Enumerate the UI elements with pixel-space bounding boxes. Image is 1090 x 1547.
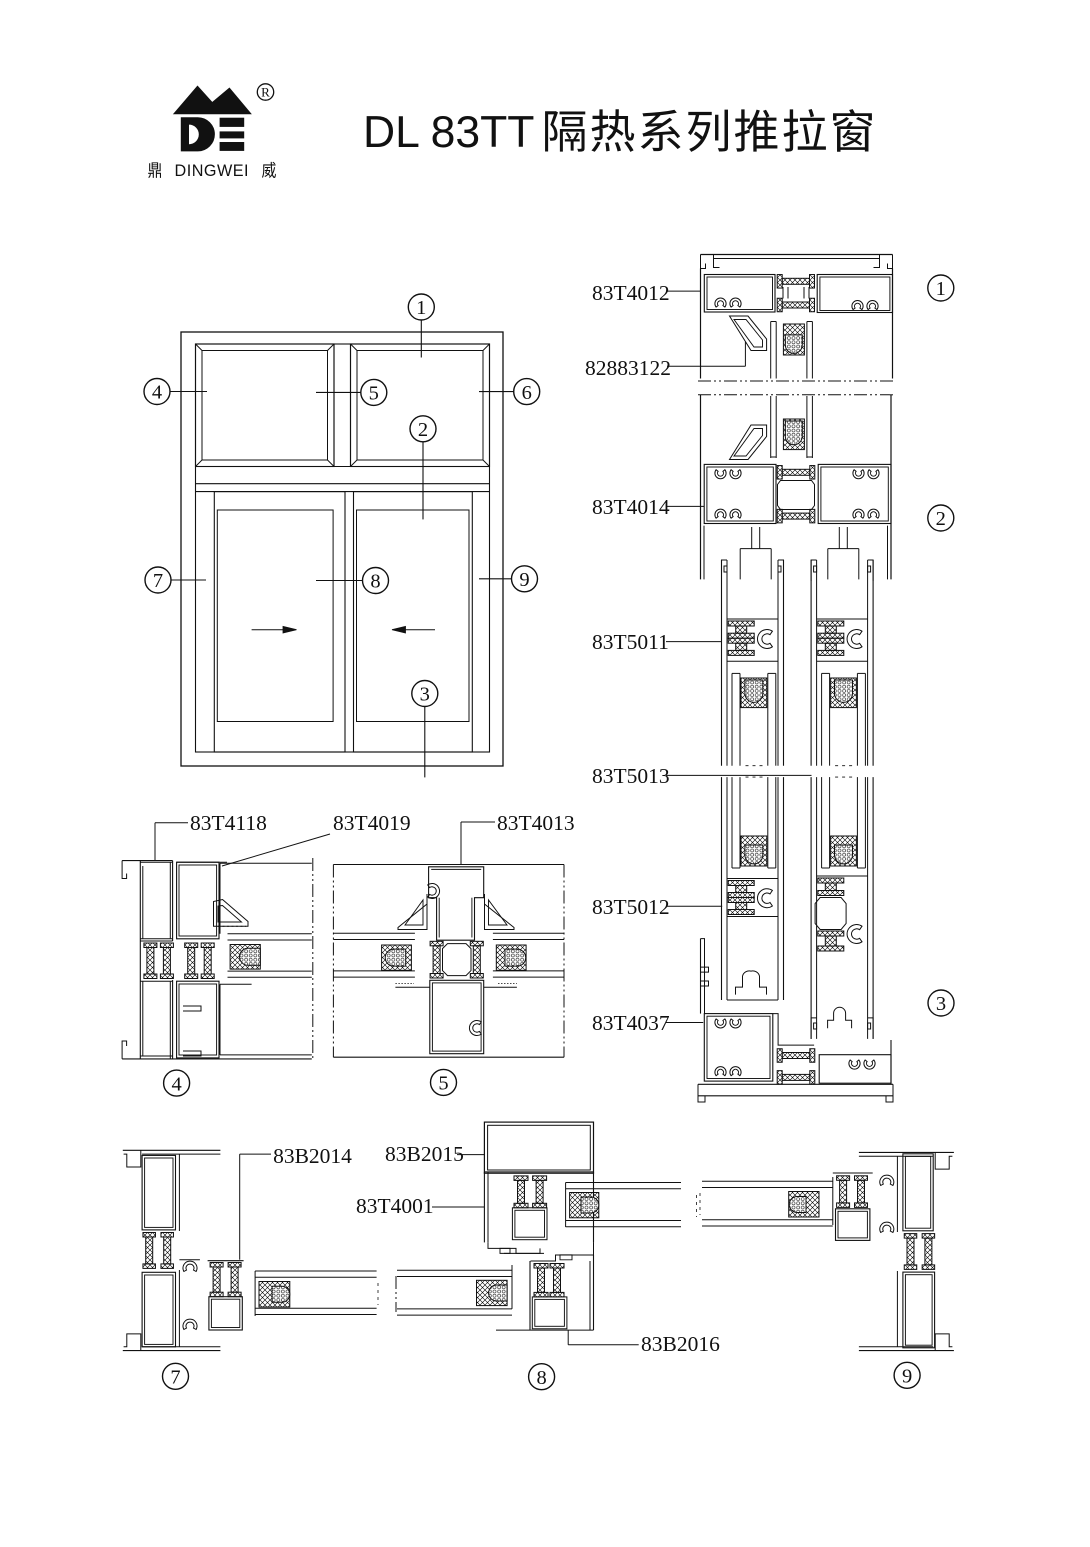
svg-text:83T4037: 83T4037 xyxy=(592,1011,670,1035)
svg-text:7: 7 xyxy=(170,1367,180,1389)
svg-text:5: 5 xyxy=(438,1073,448,1095)
svg-text:3: 3 xyxy=(420,684,430,706)
svg-text:R: R xyxy=(261,85,270,100)
svg-text:6: 6 xyxy=(522,382,532,404)
svg-text:83T4012: 83T4012 xyxy=(592,281,670,305)
svg-text:1: 1 xyxy=(416,297,426,319)
svg-text:83T4118: 83T4118 xyxy=(190,811,267,835)
svg-text:83T4013: 83T4013 xyxy=(497,811,575,835)
svg-text:7: 7 xyxy=(153,570,163,592)
svg-text:DINGWEI: DINGWEI xyxy=(175,162,250,180)
svg-text:83B2016: 83B2016 xyxy=(641,1332,720,1356)
svg-text:83T4014: 83T4014 xyxy=(592,495,670,519)
svg-text:DL 83TT: DL 83TT xyxy=(363,108,534,157)
svg-text:83B2015: 83B2015 xyxy=(385,1142,464,1166)
svg-text:3: 3 xyxy=(936,993,946,1015)
svg-text:8: 8 xyxy=(536,1367,546,1389)
svg-text:83B2014: 83B2014 xyxy=(273,1144,352,1168)
svg-text:9: 9 xyxy=(519,569,529,591)
svg-text:83T4001: 83T4001 xyxy=(356,1194,434,1218)
svg-text:2: 2 xyxy=(936,508,946,530)
svg-text:83T5011: 83T5011 xyxy=(592,630,669,654)
svg-text:83T5013: 83T5013 xyxy=(592,764,670,788)
svg-text:83T4019: 83T4019 xyxy=(333,811,411,835)
svg-text:4: 4 xyxy=(152,382,162,404)
svg-text:83T5012: 83T5012 xyxy=(592,895,670,919)
svg-text:82883122: 82883122 xyxy=(585,356,671,380)
svg-text:9: 9 xyxy=(902,1366,912,1388)
svg-text:1: 1 xyxy=(936,278,946,300)
svg-text:2: 2 xyxy=(418,419,428,441)
svg-text:4: 4 xyxy=(171,1073,181,1095)
svg-text:8: 8 xyxy=(370,571,380,593)
svg-text:5: 5 xyxy=(369,383,379,405)
